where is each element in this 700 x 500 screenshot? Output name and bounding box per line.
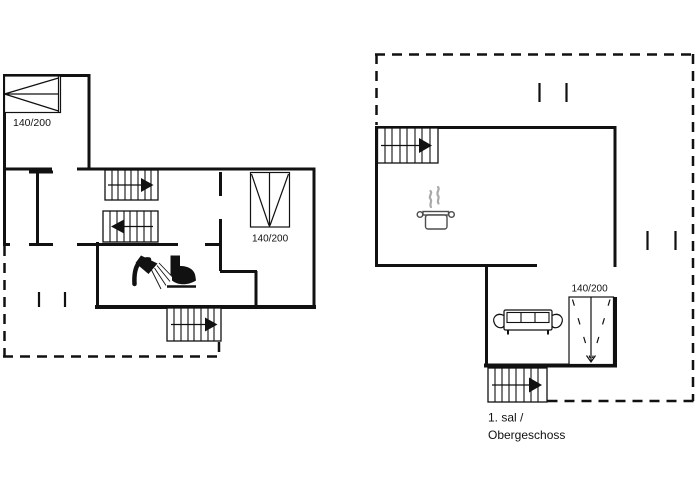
window-tick-pair-terrace — [39, 292, 65, 307]
staircase-lower — [103, 211, 158, 242]
roof-dashed-outline — [375, 54, 694, 401]
ground-floor-plan: 140/200 140/200 — [3, 74, 316, 357]
bed-size-label: 140/200 — [252, 234, 289, 245]
shower-spray-lines — [152, 263, 173, 289]
pot-body — [426, 215, 448, 229]
bed-size-label: 140/200 — [572, 284, 609, 295]
double-bed-top-left: 140/200 — [5, 76, 61, 129]
floor-caption-line2: Obergeschoss — [488, 428, 565, 442]
sofa-armrest-right — [552, 314, 562, 327]
toilet-bowl — [172, 266, 196, 284]
floorplan-canvas: 140/200 140/200 — [0, 0, 700, 500]
sofa-armrest-left — [494, 314, 504, 327]
pot-handle-left — [417, 212, 423, 218]
sofa-icon — [494, 310, 563, 335]
pot-handle-right — [449, 212, 455, 218]
floor-caption: 1. sal / Obergeschoss — [488, 411, 565, 443]
steam-squiggle-left — [430, 191, 431, 207]
bed-size-label: 140/200 — [13, 117, 51, 129]
staircase-upper — [105, 170, 158, 200]
first-floor-plan: 140/200 1. sal / Obergeschoss — [375, 54, 694, 442]
window-tick-pair-right — [648, 231, 676, 250]
staircase-first-floor-bottom — [488, 368, 547, 402]
double-bed-right-room: 140/200 — [251, 173, 290, 245]
shower-icon — [134, 256, 172, 290]
window-tick-pair-top — [540, 83, 567, 102]
floor-plan-image: 140/200 140/200 — [0, 0, 700, 500]
sofa-cushions — [507, 313, 549, 323]
shower-head — [136, 256, 158, 275]
double-bed-first-floor: 140/200 — [569, 284, 614, 365]
steam-squiggle-right — [437, 187, 438, 204]
staircase-entry — [167, 308, 221, 341]
sofa-feet — [508, 330, 548, 335]
toilet-icon — [167, 256, 196, 287]
floor-caption-line1: 1. sal / — [488, 411, 524, 425]
staircase-first-floor-top — [378, 128, 439, 163]
cooking-pot-icon — [417, 187, 454, 229]
